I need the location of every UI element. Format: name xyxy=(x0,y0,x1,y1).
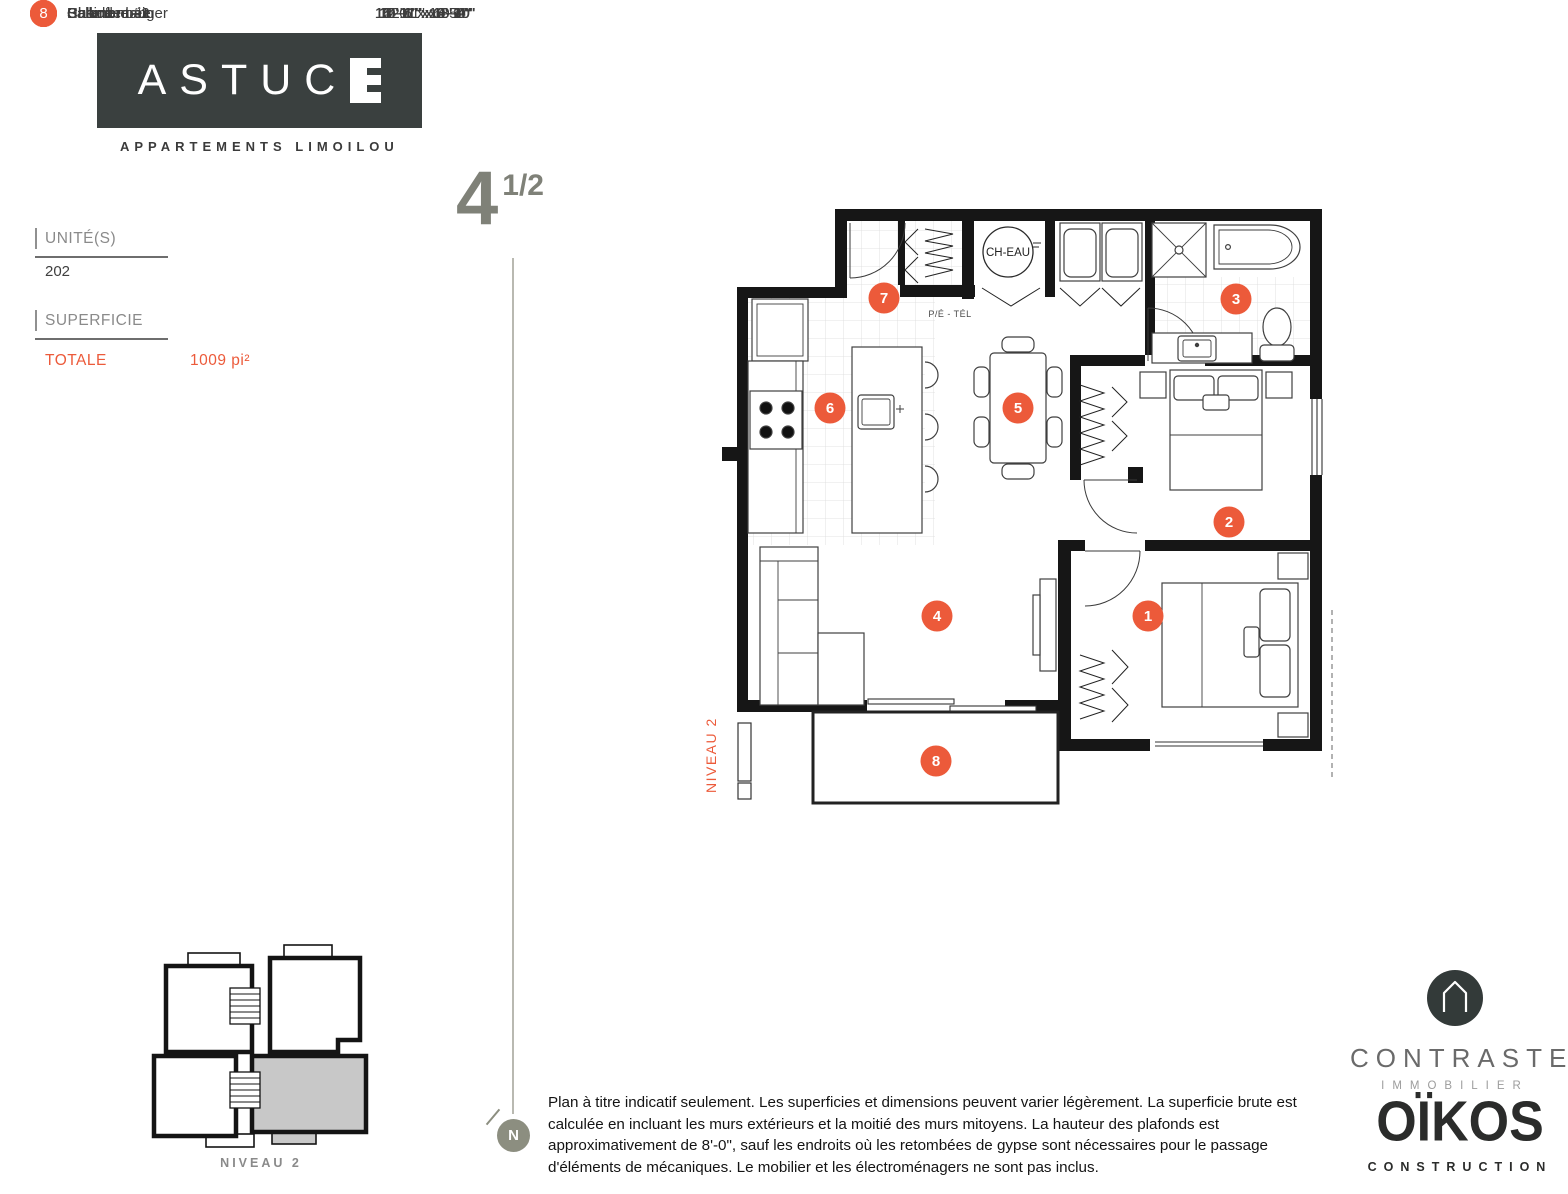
area-total-row: TOTALE 1009 pi² xyxy=(45,352,325,370)
svg-text:5: 5 xyxy=(1014,400,1022,417)
room-marker-7: 7 xyxy=(869,283,900,314)
room-marker-2: 2 xyxy=(1214,507,1245,538)
key-plan-highlighted-unit xyxy=(252,1056,366,1132)
area-total-label: TOTALE xyxy=(45,352,190,370)
plan-level-label: NIVEAU 2 xyxy=(703,717,719,793)
svg-text:3: 3 xyxy=(1232,291,1240,308)
island xyxy=(852,347,922,533)
unit-section-header: UNITÉ(S) xyxy=(35,228,168,258)
brand-logo: ASTUCE xyxy=(97,33,422,128)
unit-type-fraction: 1/2 xyxy=(502,169,544,235)
compass-label: N xyxy=(508,1127,519,1144)
room-marker-5: 5 xyxy=(1003,393,1034,424)
room-marker-8: 8 xyxy=(921,746,952,777)
nightstand xyxy=(1278,553,1308,579)
svg-text:2: 2 xyxy=(1225,514,1233,531)
contraste-logo: CONTRASTE IMMOBILIER xyxy=(1350,968,1560,1092)
toilet xyxy=(1263,308,1291,346)
nightstand xyxy=(1266,372,1292,398)
stools xyxy=(925,362,938,492)
contraste-house-icon xyxy=(1425,968,1485,1028)
oikos-logo: OÏKOS CONSTRUCTION xyxy=(1360,1092,1560,1174)
brand-letter-e: E xyxy=(350,58,381,103)
balcony xyxy=(738,712,1058,803)
svg-text:4: 4 xyxy=(933,608,942,625)
room-number-badge: 8 xyxy=(30,0,57,27)
key-plan-caption: NIVEAU 2 xyxy=(148,1156,374,1170)
stove xyxy=(750,391,802,449)
brand-subtitle: APPARTEMENTS LIMOILOU xyxy=(120,139,400,154)
compass-needle-icon xyxy=(486,1109,500,1126)
svg-text:7: 7 xyxy=(880,290,888,307)
svg-text:6: 6 xyxy=(826,400,834,417)
room-marker-4: 4 xyxy=(922,601,953,632)
oikos-name: OÏKOS xyxy=(1360,1090,1560,1155)
contraste-name: CONTRASTE xyxy=(1350,1043,1560,1074)
nightstand xyxy=(1278,713,1308,737)
svg-text:8: 8 xyxy=(932,753,940,770)
compass-north: N xyxy=(497,1119,530,1152)
tv-console xyxy=(1040,579,1056,671)
nightstand xyxy=(1140,372,1166,398)
unit-type-title: 4 1/2 xyxy=(456,163,544,235)
unit-number-value: 202 xyxy=(45,263,70,280)
disclaimer-text: Plan à titre indicatif seulement. Les su… xyxy=(548,1092,1343,1178)
bedroom1-furniture xyxy=(1162,553,1308,737)
water-heater-label: CH-EAU xyxy=(986,247,1030,259)
brand-name: ASTUC xyxy=(138,59,349,102)
floor-plan: CH-EAU xyxy=(700,195,1340,820)
sofa-chaise xyxy=(818,633,864,705)
legend-row-balcon: 8 Balcon 5'-0" x 14'-6" xyxy=(30,0,510,28)
key-plan xyxy=(148,940,374,1150)
unit-type-number: 4 xyxy=(456,163,498,235)
water-heater: CH-EAU xyxy=(983,227,1041,277)
washer-dryer xyxy=(1060,223,1142,281)
oikos-subtitle: CONSTRUCTION xyxy=(1360,1160,1560,1174)
area-section-header: SUPERFICIE xyxy=(35,310,168,340)
pe-tel-label: P/É - TÉL xyxy=(928,309,971,319)
area-total-value: 1009 pi² xyxy=(190,352,250,370)
svg-text:1: 1 xyxy=(1144,608,1152,625)
bedroom2-furniture xyxy=(1140,370,1292,490)
vertical-divider xyxy=(512,258,514,1114)
tv xyxy=(1033,595,1040,655)
salon-furniture xyxy=(760,547,1056,705)
brand-wordmark: ASTUCE xyxy=(138,58,382,103)
room-marker-6: 6 xyxy=(815,393,846,424)
room-marker-3: 3 xyxy=(1221,284,1252,315)
room-marker-1: 1 xyxy=(1133,601,1164,632)
sofa xyxy=(760,547,818,705)
